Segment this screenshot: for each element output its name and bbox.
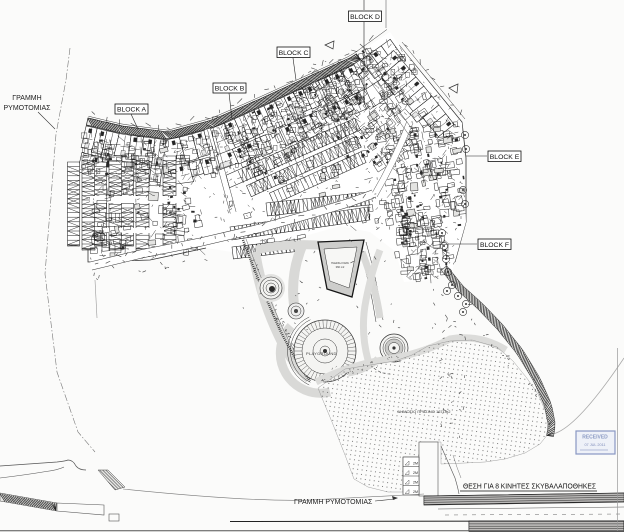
svg-text:BLOCK D: BLOCK D: [350, 14, 380, 21]
svg-text:ΠΑΙΔΙΚΗ ΧΑΡΑ: ΠΑΙΔΙΚΗ ΧΑΡΑ: [331, 261, 349, 265]
svg-text:BLOCK F: BLOCK F: [480, 242, 509, 249]
svg-text:07 JUL 2011: 07 JUL 2011: [584, 443, 605, 447]
svg-text:ΓΡΑΜΜΗ: ΓΡΑΜΜΗ: [12, 95, 41, 102]
svg-text:BLOCK A: BLOCK A: [117, 107, 147, 114]
svg-text:ΘΕΣΗ ΓΙΑ 8 ΚΙΝΗΤΕΣ ΣΚΥΒΑΛΑΠΟΘΗ: ΘΕΣΗ ΓΙΑ 8 ΚΙΝΗΤΕΣ ΣΚΥΒΑΛΑΠΟΘΗΚΕΣ: [463, 482, 596, 491]
svg-text:2Μ: 2Μ: [413, 462, 418, 466]
svg-text:BLOCK C: BLOCK C: [279, 50, 309, 57]
svg-text:ΡΥΜΟΤΟΜΙΑΣ: ΡΥΜΟΤΟΜΙΑΣ: [4, 105, 52, 112]
svg-text:2Μ: 2Μ: [413, 471, 418, 475]
svg-text:ΓΡΑΜΜΗ ΡΥΜΟΤΟΜΙΑΣ: ΓΡΑΜΜΗ ΡΥΜΟΤΟΜΙΑΣ: [294, 499, 373, 506]
svg-text:PLAYGROUND: PLAYGROUND: [306, 351, 337, 356]
svg-text:BLOCK B: BLOCK B: [215, 86, 245, 93]
svg-text:2Μ: 2Μ: [413, 490, 418, 494]
svg-text:360 m2: 360 m2: [336, 265, 345, 269]
svg-text:RECEIVED: RECEIVED: [582, 435, 608, 441]
svg-text:2Μ: 2Μ: [413, 481, 418, 485]
svg-text:BLOCK E: BLOCK E: [490, 154, 520, 161]
